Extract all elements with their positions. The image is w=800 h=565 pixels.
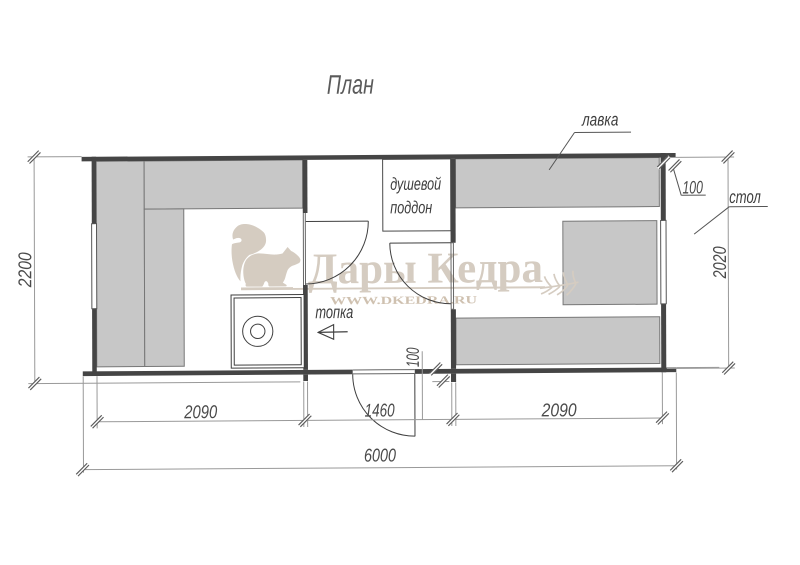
svg-text:2090: 2090 (183, 401, 217, 422)
svg-text:100: 100 (403, 347, 423, 367)
svg-text:План: План (327, 70, 374, 100)
svg-text:стол: стол (729, 187, 761, 207)
svg-text:2200: 2200 (14, 252, 35, 289)
svg-text:топка: топка (315, 302, 353, 322)
svg-text:Дары Кедра: Дары Кедра (308, 243, 543, 294)
svg-text:100: 100 (682, 177, 703, 197)
svg-text:1460: 1460 (365, 399, 396, 420)
svg-text:2090: 2090 (541, 399, 578, 420)
svg-text:лавка: лавка (581, 109, 618, 129)
svg-text:поддон: поддон (390, 197, 432, 217)
svg-text:душевой: душевой (390, 174, 441, 194)
svg-text:2020: 2020 (709, 246, 730, 279)
svg-text:6000: 6000 (364, 444, 397, 465)
